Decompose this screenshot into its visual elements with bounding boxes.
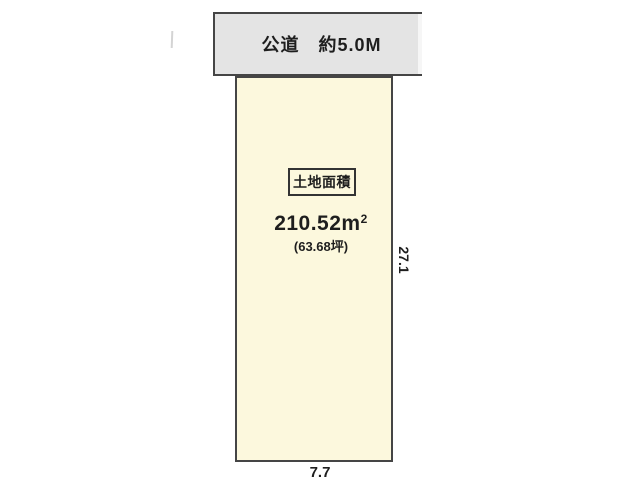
road-end-gap	[418, 14, 422, 74]
land-area-title: 土地面積	[293, 172, 351, 192]
land-area-unit-superscript: 2	[361, 207, 368, 231]
land-area-tsubo: (63.68坪)	[249, 238, 393, 255]
land-area-title-box: 土地面積	[288, 168, 356, 196]
land-area-unit: m	[341, 212, 360, 235]
dimension-right: 27.1	[396, 246, 412, 273]
land-area-value-group: 210.52m2 (63.68坪)	[235, 212, 393, 255]
land-plot-diagram: 公道 約5.0M 土地面積 210.52m2 (63.68坪) 27.1 7.7	[0, 0, 640, 480]
road-band: 公道 約5.0M	[213, 12, 422, 76]
land-area-value-number: 210.52	[274, 212, 341, 235]
dimension-bottom: 7.7	[310, 464, 331, 480]
stray-tick-mark	[171, 31, 174, 48]
road-label: 公道 約5.0M	[255, 31, 381, 57]
land-area-value: 210.52m2	[249, 212, 393, 238]
plot-rect	[235, 76, 393, 462]
